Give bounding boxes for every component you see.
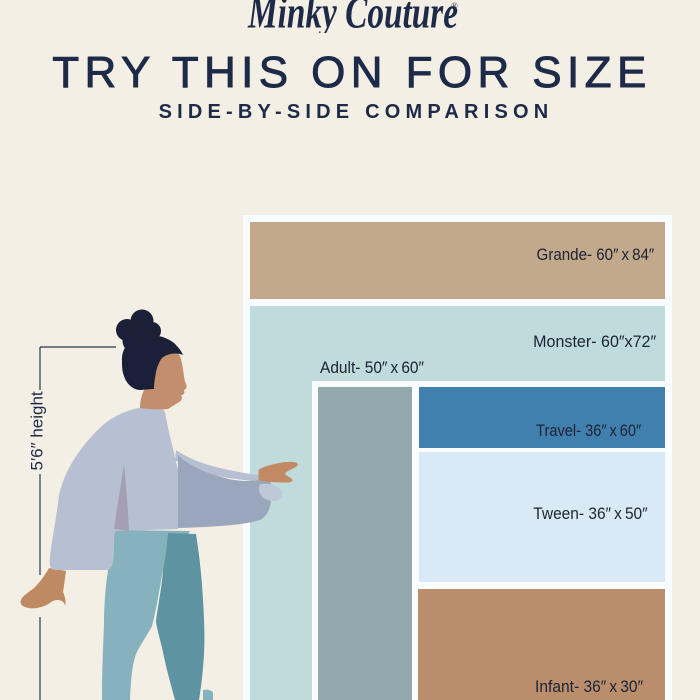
svg-text:Minky Couture: Minky Couture bbox=[247, 0, 458, 33]
svg-text:5′6″ height: 5′6″ height bbox=[28, 391, 47, 470]
svg-text:®: ® bbox=[451, 1, 458, 11]
